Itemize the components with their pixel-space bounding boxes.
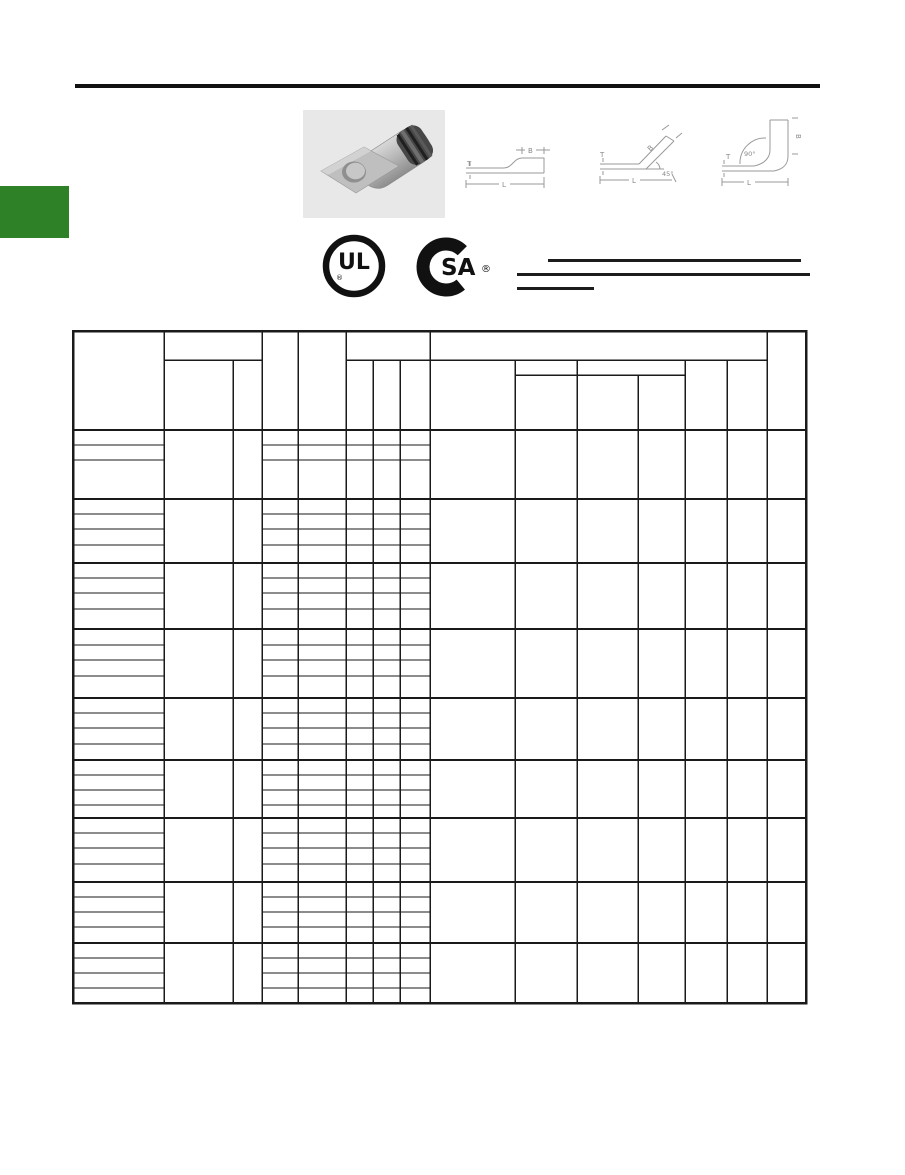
spec-table [71,329,811,1007]
diagram-45-lug: B T 45° L [596,116,696,190]
catalog-page: B T L B T 45° L [0,0,905,1175]
blank-rule-2 [517,273,810,276]
dim-label-t: T [725,153,731,161]
diagram-straight-lug: B T L [462,140,558,192]
dim-label-l: L [747,179,751,187]
blank-rule-1 [548,259,801,262]
ul-registered-icon: ® [336,274,343,282]
product-photo-lug [303,110,445,218]
ul-letters: UL [338,250,370,275]
csa-registered-icon: ® [481,264,491,275]
dim-label-t: T [599,151,605,159]
top-divider [75,84,820,88]
table-border [73,331,806,1003]
blank-rule-3 [517,287,594,290]
dim-label-l: L [502,181,506,189]
angle-label: 90° [744,150,756,158]
csa-letters: SA [441,255,476,281]
diagram-90-lug: B T 90° L [714,110,806,190]
dim-label-b: B [794,134,802,139]
lug-hole [346,163,365,179]
dim-label-l: L [632,177,636,185]
dim-label-b: B [646,144,655,153]
dim-label-b: B [528,147,533,155]
csa-logo: SA ® [415,232,495,300]
section-tab-green [0,186,69,238]
ul-logo: UL ® [321,233,387,299]
angle-label: 45° [662,170,674,178]
dim-label-t: T [466,160,472,168]
